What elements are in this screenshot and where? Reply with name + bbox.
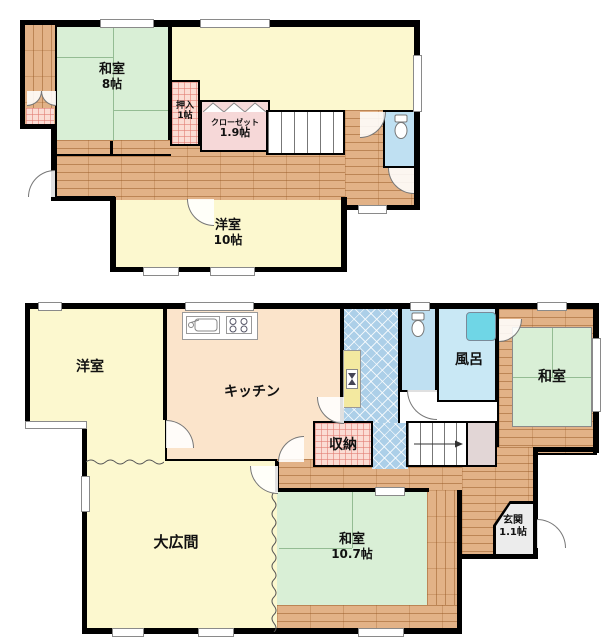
floor-plan: 和室 8帖 押入 1帖 クローゼット 1.9帖 洋室 10帖: [0, 0, 612, 640]
room-label-washitsu107: 和室 10.7帖: [310, 533, 394, 562]
room-size: 8帖: [77, 78, 147, 92]
balcony-closet: [26, 108, 54, 124]
entrance-door-arc: [537, 519, 566, 548]
window: [143, 267, 179, 276]
exterior-wall: [110, 197, 116, 272]
toilet-icon: [392, 114, 410, 140]
washroom-annex: [372, 423, 408, 469]
room-label-youshitsu10: 洋室 10帖: [193, 219, 263, 248]
window: [375, 487, 405, 496]
window-opening: [25, 421, 87, 429]
toilet-door-arc: [407, 390, 437, 420]
washbasin-icon: [343, 350, 361, 408]
window: [358, 628, 404, 637]
exterior-wall: [53, 196, 115, 201]
wavy-partition: [270, 492, 278, 632]
room-name: 和室: [310, 533, 394, 548]
room-name: 大広間: [140, 534, 212, 551]
room-name: 洋室: [193, 219, 263, 234]
room-label-genkan: 玄関 1.1帖: [488, 515, 538, 538]
tatami-line: [57, 57, 113, 58]
exterior-wall: [25, 303, 599, 308]
exterior-wall: [535, 447, 597, 452]
tatami-line: [114, 110, 168, 111]
room-name: 押入: [168, 101, 202, 111]
room-label-washitsu: 和室: [524, 369, 580, 385]
accordion-door-icon: [203, 102, 267, 112]
window: [410, 302, 430, 311]
window: [537, 302, 567, 311]
room-name: 風呂: [443, 352, 495, 368]
exterior-wall: [20, 20, 25, 129]
window: [413, 55, 422, 112]
upper-room: [170, 25, 418, 112]
exterior-wall: [460, 554, 537, 559]
room-label-ohiroma: 大広間: [140, 534, 212, 551]
interior-wall: [275, 488, 429, 492]
wall: [110, 141, 113, 155]
wall: [55, 154, 171, 156]
kitchen-sink-icon: [186, 316, 220, 334]
exterior-wall: [414, 20, 420, 210]
room-label-kitchen: キッチン: [200, 384, 304, 400]
room-name: 玄関: [488, 515, 538, 527]
window: [112, 628, 144, 637]
window: [81, 476, 90, 512]
window: [38, 302, 62, 311]
room-label-closet: クローゼット 1.9帖: [200, 118, 270, 140]
window: [210, 267, 255, 276]
room-label-washitsu8: 和室 8帖: [77, 63, 147, 92]
room-size: 1帖: [168, 111, 202, 121]
bathtub-icon: [466, 312, 496, 341]
understairs-space: [466, 421, 497, 467]
window: [100, 19, 154, 28]
room-size: 10帖: [193, 234, 263, 248]
room-name: 洋室: [58, 359, 122, 375]
exterior-wall: [20, 124, 55, 129]
window: [358, 205, 387, 214]
stove-icon: [226, 316, 252, 334]
room-label-youshitsu: 洋室: [58, 359, 122, 375]
room-size: 1.9帖: [200, 127, 270, 140]
toilet-icon: [409, 312, 427, 338]
window: [200, 19, 270, 28]
room-name: 収納: [316, 437, 370, 453]
room-name: 和室: [524, 369, 580, 385]
room-label-shuunou: 収納: [316, 437, 370, 453]
room-label-bath: 風呂: [443, 352, 495, 368]
window: [592, 338, 601, 412]
room-youshitsu-annex: [85, 420, 167, 463]
room-size: 1.1帖: [488, 527, 538, 539]
room-name: 和室: [77, 63, 147, 78]
room-label-oshiire: 押入 1帖: [168, 101, 202, 122]
exterior-wall: [82, 421, 87, 632]
exterior-wall: [25, 303, 30, 425]
window: [185, 302, 254, 311]
staircase-floor1: [266, 110, 345, 155]
exterior-wall: [457, 490, 462, 632]
window: [198, 628, 234, 637]
wavy-partition: [86, 458, 164, 466]
exterior-wall: [341, 197, 347, 272]
room-name: キッチン: [200, 384, 304, 400]
entry-door-arc: [28, 170, 55, 197]
room-size: 10.7帖: [310, 548, 394, 562]
staircase-arrow: [412, 439, 464, 449]
